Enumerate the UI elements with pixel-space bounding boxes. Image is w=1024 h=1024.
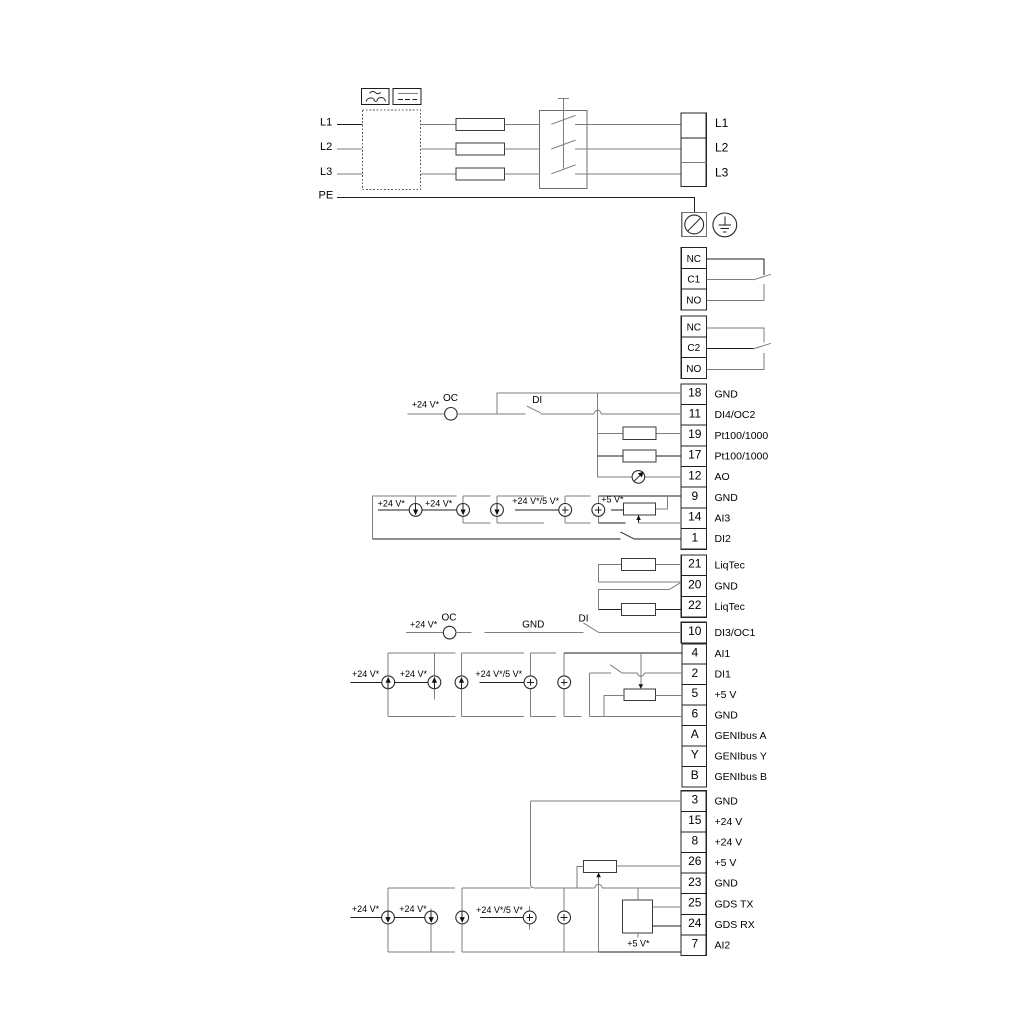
svg-text:LiqTec: LiqTec — [715, 601, 745, 613]
svg-text:DI2: DI2 — [715, 533, 732, 545]
svg-text:+24 V*: +24 V* — [399, 904, 427, 914]
svg-text:GDS RX: GDS RX — [715, 919, 755, 931]
svg-text:NO: NO — [686, 296, 701, 307]
svg-text:GND: GND — [715, 389, 739, 401]
svg-text:Pt100/1000: Pt100/1000 — [715, 451, 769, 463]
svg-text:1: 1 — [691, 530, 698, 544]
svg-text:14: 14 — [688, 510, 702, 524]
svg-text:OC: OC — [442, 612, 457, 623]
svg-text:19: 19 — [688, 427, 702, 441]
svg-text:AI2: AI2 — [715, 940, 731, 952]
svg-text:20: 20 — [688, 577, 702, 591]
svg-text:DI4/OC2: DI4/OC2 — [715, 409, 756, 421]
svg-text:NO: NO — [686, 364, 701, 375]
svg-text:DI1: DI1 — [715, 669, 732, 681]
svg-text:5: 5 — [691, 686, 698, 700]
svg-text:L3: L3 — [320, 166, 332, 178]
svg-text:2: 2 — [691, 666, 698, 680]
svg-text:7: 7 — [691, 937, 698, 951]
svg-text:+24 V*/5 V*: +24 V*/5 V* — [476, 905, 523, 915]
svg-text:+5 V: +5 V — [715, 857, 737, 869]
svg-text:3: 3 — [691, 792, 698, 806]
svg-text:4: 4 — [691, 645, 698, 659]
svg-text:DI: DI — [532, 395, 542, 406]
svg-text:+24 V*/5 V*: +24 V*/5 V* — [475, 669, 522, 679]
svg-text:21: 21 — [688, 557, 702, 571]
svg-text:AI1: AI1 — [715, 648, 731, 660]
svg-text:GND: GND — [715, 878, 739, 890]
svg-text:+24 V*: +24 V* — [352, 904, 380, 914]
svg-text:15: 15 — [688, 813, 702, 827]
svg-text:+24 V*/5 V*: +24 V*/5 V* — [512, 496, 559, 506]
svg-text:B: B — [691, 768, 699, 782]
svg-text:+5 V*: +5 V* — [627, 938, 650, 948]
svg-text:GDS TX: GDS TX — [715, 898, 754, 910]
svg-text:+24 V*: +24 V* — [378, 498, 406, 508]
svg-text:9: 9 — [691, 489, 698, 503]
svg-text:GENIbus Y: GENIbus Y — [715, 751, 767, 763]
svg-text:NC: NC — [687, 254, 701, 265]
svg-text:DI3/OC1: DI3/OC1 — [715, 627, 756, 639]
svg-text:Pt100/1000: Pt100/1000 — [715, 430, 769, 442]
svg-text:NC: NC — [687, 322, 701, 333]
svg-text:GND: GND — [715, 710, 739, 722]
svg-text:AO: AO — [715, 471, 730, 483]
svg-text:OC: OC — [443, 393, 458, 404]
svg-text:6: 6 — [691, 707, 698, 721]
svg-text:L2: L2 — [715, 141, 729, 155]
svg-text:11: 11 — [689, 406, 702, 420]
svg-text:+24 V: +24 V — [715, 837, 743, 849]
svg-text:LiqTec: LiqTec — [715, 560, 745, 572]
svg-text:+24 V: +24 V — [715, 816, 743, 828]
svg-text:+24 V*: +24 V* — [400, 669, 428, 679]
svg-text:24: 24 — [688, 916, 702, 930]
svg-text:25: 25 — [688, 895, 702, 909]
svg-text:+5 V: +5 V — [715, 689, 737, 701]
svg-text:GENIbus B: GENIbus B — [715, 771, 768, 783]
svg-text:L3: L3 — [715, 165, 729, 179]
svg-text:+24 V*: +24 V* — [410, 620, 438, 630]
svg-text:23: 23 — [688, 875, 702, 889]
svg-text:+24 V*: +24 V* — [412, 400, 440, 410]
svg-text:GENIbus A: GENIbus A — [715, 730, 767, 742]
svg-text:C2: C2 — [687, 343, 700, 354]
svg-text:GND: GND — [715, 795, 739, 807]
svg-text:8: 8 — [691, 834, 698, 848]
svg-text:L1: L1 — [715, 116, 729, 130]
svg-text:PE: PE — [319, 190, 334, 202]
svg-text:DI: DI — [579, 613, 589, 624]
svg-text:+24 V*: +24 V* — [352, 669, 380, 679]
svg-text:12: 12 — [688, 468, 702, 482]
svg-text:+24 V*: +24 V* — [425, 498, 453, 508]
svg-text:GND: GND — [522, 620, 544, 631]
svg-text:10: 10 — [688, 624, 702, 638]
svg-text:Y: Y — [691, 748, 699, 762]
svg-text:C1: C1 — [687, 275, 700, 286]
svg-text:GND: GND — [715, 492, 739, 504]
svg-text:AI3: AI3 — [715, 513, 731, 525]
svg-text:L2: L2 — [320, 141, 332, 153]
svg-text:17: 17 — [688, 448, 702, 462]
svg-text:L1: L1 — [320, 116, 332, 128]
svg-text:26: 26 — [688, 854, 702, 868]
svg-text:18: 18 — [688, 386, 702, 400]
svg-text:22: 22 — [688, 598, 702, 612]
svg-text:GND: GND — [715, 580, 739, 592]
svg-text:A: A — [691, 727, 699, 741]
